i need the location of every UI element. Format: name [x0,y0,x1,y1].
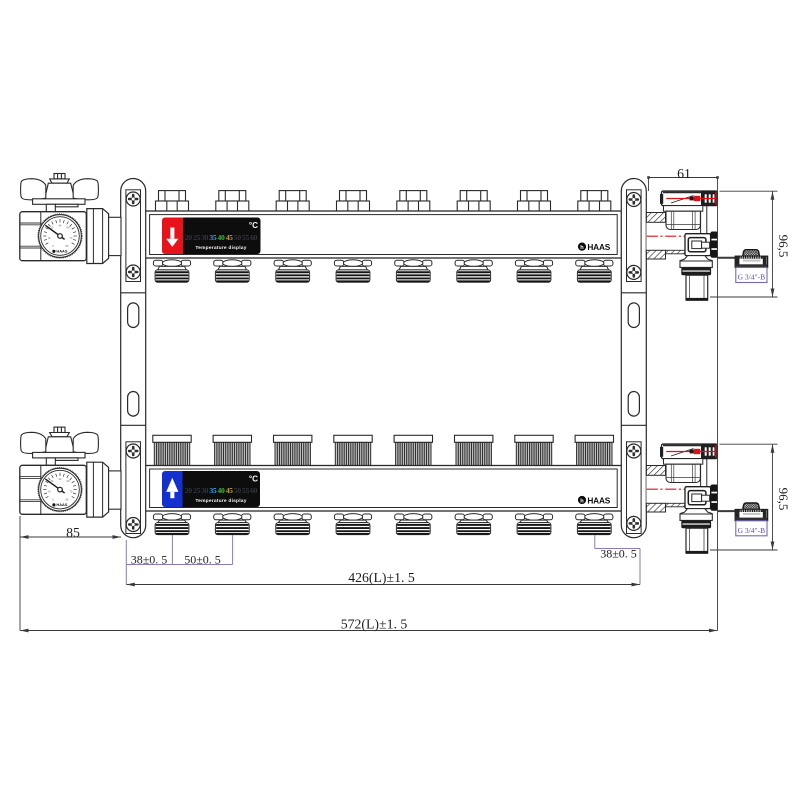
svg-text:40: 40 [218,233,225,242]
svg-text:96,5: 96,5 [776,488,791,511]
svg-text:38±0. 5: 38±0. 5 [600,547,637,561]
svg-text:25: 25 [193,233,200,242]
svg-text:60: 60 [250,486,257,495]
svg-text:85: 85 [66,525,80,540]
svg-text:°C: °C [249,221,258,230]
svg-text:Temperature display: Temperature display [195,245,246,251]
svg-text:426(L)±1. 5: 426(L)±1. 5 [348,570,415,586]
svg-text:20: 20 [185,233,192,242]
svg-text:°C: °C [249,474,258,483]
svg-text:HAAS: HAAS [587,495,610,505]
svg-text:30: 30 [201,486,208,495]
svg-text:G 3/4″-B: G 3/4″-B [738,273,766,282]
svg-text:50±0. 5: 50±0. 5 [184,553,221,567]
svg-text:20: 20 [185,486,192,495]
svg-text:38±0. 5: 38±0. 5 [131,553,168,567]
svg-text:40: 40 [218,486,225,495]
svg-text:60: 60 [250,233,257,242]
svg-text:55: 55 [242,486,249,495]
svg-text:55: 55 [242,233,249,242]
svg-text:45: 45 [226,486,233,495]
svg-text:h: h [580,498,584,504]
svg-text:HAAS: HAAS [587,242,610,252]
svg-text:35: 35 [209,233,216,242]
svg-text:Temperature display: Temperature display [195,498,246,504]
svg-text:50: 50 [234,486,241,495]
svg-text:35: 35 [209,486,216,495]
svg-text:HAAS: HAAS [56,249,67,254]
svg-text:572(L)±1. 5: 572(L)±1. 5 [341,616,408,632]
svg-text:96,5: 96,5 [776,235,791,258]
svg-text:25: 25 [193,486,200,495]
svg-text:30: 30 [201,233,208,242]
svg-text:45: 45 [226,233,233,242]
svg-text:50: 50 [234,233,241,242]
svg-text:h: h [580,245,584,251]
svg-text:61: 61 [677,166,691,181]
